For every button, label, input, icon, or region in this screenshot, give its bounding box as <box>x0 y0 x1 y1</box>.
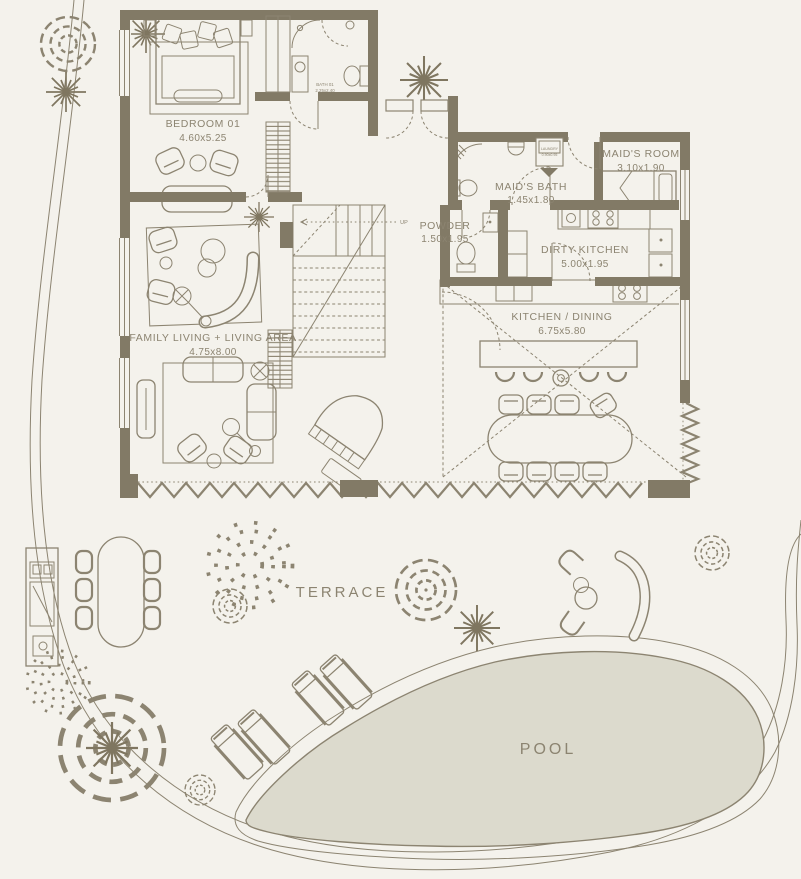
plant-icon <box>400 56 448 104</box>
plant-icon <box>244 202 274 232</box>
armchair-icon <box>154 146 187 177</box>
shower-door-arc <box>322 20 348 46</box>
sink-icon <box>295 62 305 72</box>
outdoor-chair-icon <box>144 607 160 629</box>
dirty-kitchen-label: DIRTY KITCHEN <box>541 244 629 256</box>
pillow <box>213 28 233 48</box>
tree-icon <box>41 17 95 71</box>
staircase: UP <box>293 205 408 357</box>
kitchen-fixtures <box>440 279 688 481</box>
window-icon <box>118 30 131 96</box>
bbq-counter <box>26 548 58 666</box>
outdoor-chair-icon <box>76 607 92 629</box>
pillow <box>180 31 199 50</box>
toilet-icon <box>457 242 475 264</box>
bedroom-rug <box>150 42 248 114</box>
stove-icon <box>588 208 618 228</box>
outdoor-chair-icon <box>76 579 92 601</box>
floor-plan-drawing: UP <box>0 0 801 879</box>
blanket <box>162 56 234 98</box>
outdoor-dining-table <box>98 537 144 647</box>
grand-piano-icon <box>294 382 402 494</box>
rug <box>163 363 273 463</box>
shower-icon <box>292 20 320 48</box>
bed <box>156 18 240 104</box>
armchair-icon <box>208 149 240 178</box>
side-table <box>190 155 206 171</box>
bar-stool-icon <box>608 372 626 381</box>
maids-room-label: MAID'S ROOM <box>602 148 679 160</box>
powder-dims: 1.50x1.95 <box>421 234 469 245</box>
toilet-icon <box>459 180 477 196</box>
toilet-tank <box>457 264 475 272</box>
bath01-door <box>290 101 318 129</box>
sink-icon <box>508 147 524 155</box>
shrub-icon <box>208 523 293 608</box>
bar-stool-icon <box>496 372 514 381</box>
sink-icon <box>567 214 576 223</box>
dining-chair-icon <box>527 395 551 414</box>
pillow <box>659 174 672 202</box>
kitchen-dining-dims: 6.75x5.80 <box>538 326 586 337</box>
toilet-tank <box>360 66 369 86</box>
bed-roll <box>174 90 222 102</box>
entry-double-door <box>386 100 448 138</box>
bath01-dims: 2.25x2.40 <box>315 88 335 93</box>
window-icon <box>679 300 691 380</box>
lounge-chair-icon <box>557 548 584 575</box>
outdoor-side-table-small <box>574 578 589 593</box>
maids-room-dims: 3.10x1.90 <box>617 163 665 174</box>
vanity <box>292 56 308 92</box>
single-bed <box>601 171 676 205</box>
lounge-chair-icon <box>558 611 584 637</box>
laundry-dims: 0.90x0.95 <box>542 153 558 157</box>
maids-bath-dims: 1.45x1.80 <box>507 195 555 206</box>
armchair-icon <box>147 226 179 255</box>
maids-room-furniture <box>601 171 676 205</box>
dining-chair-icon <box>499 395 523 414</box>
maids-bath-label: MAID'S BATH <box>495 181 567 193</box>
family-living-label: FAMILY LIVING + LIVING AREA <box>129 332 296 344</box>
armchair-icon <box>175 431 209 464</box>
armchair-icon <box>146 278 177 306</box>
pool-label: POOL <box>520 741 576 758</box>
outdoor-chair-icon <box>144 551 160 573</box>
shrub-icon <box>213 589 247 623</box>
laundry-label: LAUNDRY <box>541 147 559 151</box>
blanket-fold <box>620 171 632 205</box>
outdoor-lounge-set <box>557 548 645 637</box>
dirty-kitchen-dims: 5.00x1.95 <box>561 259 609 270</box>
floor-plan: UP <box>0 0 801 879</box>
stool <box>207 454 221 468</box>
window-icon <box>679 170 691 220</box>
side-table <box>160 257 172 269</box>
bedroom-furniture <box>144 18 252 212</box>
tree-branches-icon <box>86 722 138 774</box>
powder-label: POWDER <box>420 220 471 232</box>
nightstand <box>241 20 252 36</box>
sun-lounger-icon <box>318 653 374 711</box>
family-living-dims: 4.75x8.00 <box>189 347 237 358</box>
plant-icon <box>695 536 729 570</box>
dining-chair-icon <box>555 395 579 414</box>
bar-stool-icon <box>580 372 598 381</box>
plant-icon <box>46 72 86 112</box>
dining-chair-icon <box>583 462 607 481</box>
window-icon <box>118 238 131 336</box>
shrub-icon <box>185 775 215 805</box>
plant-icon <box>454 605 500 651</box>
terrace-label: TERRACE <box>296 584 389 601</box>
dining-chair-icon <box>527 462 551 481</box>
bedroom01-label: BEDROOM 01 <box>166 118 241 130</box>
bath01-label: BATH 01 <box>316 82 334 87</box>
kitchen-island <box>480 341 637 367</box>
dining-chair-icon <box>499 462 523 481</box>
sun-lounger-icon <box>290 669 346 727</box>
plant-icon <box>127 15 165 53</box>
pool-area <box>235 636 779 860</box>
dining-table <box>488 415 632 463</box>
terrace-open-edge <box>138 403 698 497</box>
rug <box>146 224 261 326</box>
outdoor-chair-icon <box>144 579 160 601</box>
pillow <box>197 21 216 40</box>
bar-stool-icon <box>524 372 542 381</box>
outdoor-chair-icon <box>76 551 92 573</box>
stairs-up-label: UP <box>400 220 408 226</box>
bedroom01-dims: 4.60x5.25 <box>179 133 227 144</box>
sun-lounger-icon <box>236 708 292 766</box>
dining-chair-icon <box>555 462 579 481</box>
pool <box>246 652 764 847</box>
sun-lounger-icon <box>209 723 265 781</box>
round-table <box>223 419 240 436</box>
window-icon <box>118 358 131 428</box>
laundry-unit: LAUNDRY 0.90x0.95 <box>536 138 563 177</box>
kitchen-dining-label: KITCHEN / DINING <box>511 311 612 323</box>
counter <box>558 207 650 229</box>
toilet-icon <box>344 66 360 86</box>
bedroom-door <box>246 175 268 197</box>
